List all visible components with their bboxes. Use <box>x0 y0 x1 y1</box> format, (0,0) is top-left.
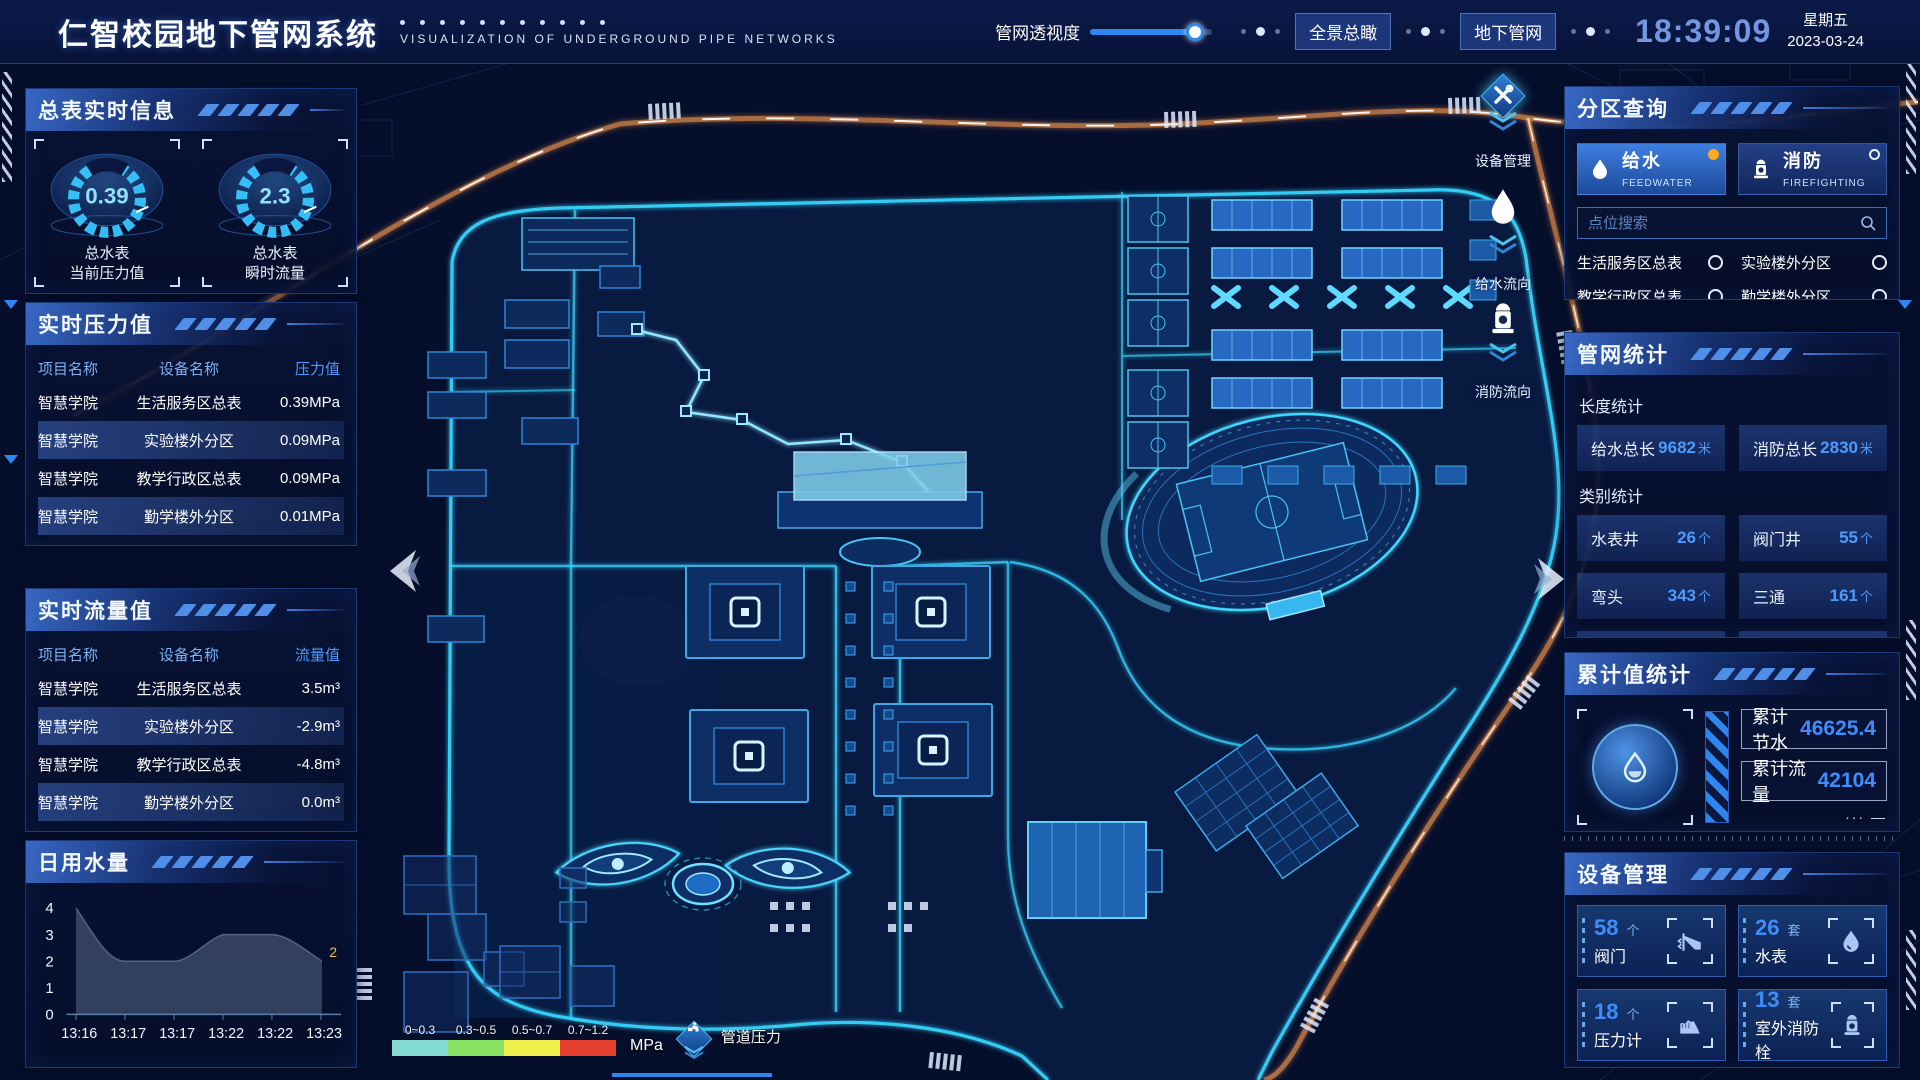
app-title: 仁智校园地下管网系统 <box>58 10 378 54</box>
panel-title: 设备管理 <box>1577 859 1669 889</box>
panel-device-management: 设备管理 58个阀门 26套水表 18个压力计 13套室外消防栓 <box>1564 852 1900 1068</box>
point-radio[interactable] <box>1708 255 1723 270</box>
feedwater-radio[interactable] <box>1708 149 1719 160</box>
flow-table: 项目名称设备名称流量值 智慧学院生活服务区总表3.5m³ 智慧学院实验楼外分区-… <box>26 631 356 832</box>
svg-text:0.39: 0.39 <box>85 183 128 208</box>
gauge-dial-icon: 2.3 <box>207 143 343 239</box>
point-search-box[interactable] <box>1577 207 1887 239</box>
bottom-accent-bar <box>612 1073 772 1077</box>
legend-range: 0.3~0.5 <box>448 1023 504 1056</box>
daily-water-chart: 4 3 2 1 0 2 13:16 13:17 13:17 13:22 13:2… <box>26 887 356 1063</box>
weekday-label: 星期五 <box>1803 12 1848 29</box>
edge-hash-decoration <box>2 72 12 182</box>
tools-icon <box>1491 83 1515 107</box>
date-block: 星期五 2023-03-24 <box>1787 11 1864 53</box>
table-row[interactable]: 智慧学院勤学楼外分区0.01MPa <box>38 497 344 535</box>
panel-header: 总表实时信息 <box>26 89 356 131</box>
panel-title: 实时流量值 <box>38 595 153 625</box>
stripes-decoration <box>1705 711 1729 823</box>
slashes-decoration <box>1695 348 1795 360</box>
overview-button[interactable]: 全景总瞰 <box>1295 13 1391 50</box>
pressure-gauge-icon <box>1677 1012 1703 1038</box>
water-meter-icon <box>1838 928 1864 954</box>
map-pan-left-arrow[interactable] <box>386 548 420 594</box>
panel-title: 日用水量 <box>38 847 130 877</box>
legend-range: 0.7~1.2 <box>560 1023 616 1056</box>
list-item[interactable]: 勤学楼外分区 <box>1741 279 1887 300</box>
firefighting-toggle-button[interactable]: 消防FIREFIGHTING <box>1738 143 1887 195</box>
chevrons-down-icon <box>683 1046 705 1060</box>
pipe-opacity-slider[interactable] <box>1090 29 1212 35</box>
svg-text:2.3: 2.3 <box>259 183 290 208</box>
edge-marker <box>4 300 18 309</box>
x-axis-ticks: 13:16 13:17 13:17 13:22 13:22 13:23 <box>61 1026 342 1042</box>
slashes-decoration <box>1718 668 1818 680</box>
chevrons-down-icon <box>1488 235 1518 255</box>
svg-text:1: 1 <box>45 981 53 997</box>
valve-icon <box>1677 928 1703 954</box>
svg-text:3: 3 <box>45 928 53 944</box>
panel-header: 分区查询 <box>1565 87 1899 129</box>
stat-box: 三通161个 <box>1739 573 1887 619</box>
stat-box-clipped <box>1577 631 1725 638</box>
hydrant-icon <box>1839 1012 1865 1038</box>
stat-box: 阀门井55个 <box>1739 515 1887 561</box>
panel-realtime-flow: 实时流量值 项目名称设备名称流量值 智慧学院生活服务区总表3.5m³ 智慧学院实… <box>25 588 357 832</box>
table-row[interactable]: 智慧学院生活服务区总表0.39MPa <box>38 383 344 421</box>
panel-title: 累计值统计 <box>1577 659 1692 689</box>
dashes-decoration: ··· — <box>1845 809 1887 825</box>
water-drop-icon <box>1588 157 1612 181</box>
point-radio[interactable] <box>1708 289 1723 301</box>
slashes-decoration <box>1695 868 1795 880</box>
app-subtitle: VISUALIZATION OF UNDERGROUND PIPE NETWOR… <box>400 32 838 46</box>
firefighting-radio[interactable] <box>1869 149 1880 160</box>
device-card-pressure-gauges[interactable]: 18个压力计 <box>1577 989 1726 1061</box>
dots-separator <box>1566 27 1615 36</box>
chevrons-down-icon <box>1488 343 1518 363</box>
device-card-water-meters[interactable]: 26套水表 <box>1738 905 1887 977</box>
date-label: 2023-03-24 <box>1787 33 1864 50</box>
series-end-label: 2 <box>329 944 337 960</box>
slashes-decoration <box>202 104 302 116</box>
panel-title: 分区查询 <box>1577 93 1669 123</box>
panel-network-stats: 管网统计 长度统计 给水总长9682米 消防总长2830米 类别统计 水表井26… <box>1564 332 1900 638</box>
svg-text:4: 4 <box>45 901 53 917</box>
underground-pipes-button[interactable]: 地下管网 <box>1460 13 1556 50</box>
panel-title: 管网统计 <box>1577 339 1669 369</box>
slashes-decoration <box>179 318 279 330</box>
device-card-hydrants[interactable]: 13套室外消防栓 <box>1738 989 1887 1061</box>
point-radio[interactable] <box>1872 255 1887 270</box>
y-axis-ticks: 4 3 2 1 0 <box>45 901 53 1023</box>
stat-box: 消防总长2830米 <box>1739 425 1887 471</box>
slashes-decoration <box>156 856 256 868</box>
stat-box: 水表井26个 <box>1577 515 1725 561</box>
title-dots-decoration <box>400 18 838 28</box>
stat-box-clipped <box>1739 631 1887 638</box>
panel-daily-water: 日用水量 4 3 2 1 0 2 13:16 13:17 13:17 13:22… <box>25 840 357 1068</box>
panel-header: 累计值统计 <box>1565 653 1899 695</box>
top-bar: 仁智校园地下管网系统 VISUALIZATION OF UNDERGROUND … <box>0 0 1920 64</box>
slashes-decoration <box>179 604 279 616</box>
tool-feedwater-flow[interactable]: 给水流向 <box>1470 186 1536 294</box>
basketball-courts <box>1128 196 1188 468</box>
stat-box: 弯头343个 <box>1577 573 1725 619</box>
panel-header: 设备管理 <box>1565 853 1899 895</box>
dots-separator <box>1401 27 1450 36</box>
svg-text:13:17: 13:17 <box>159 1026 195 1042</box>
hydrant-icon <box>1749 157 1773 181</box>
svg-text:13:17: 13:17 <box>110 1026 146 1042</box>
feedwater-toggle-button[interactable]: 给水FEEDWATER <box>1577 143 1726 195</box>
device-card-valves[interactable]: 58个阀门 <box>1577 905 1726 977</box>
table-row[interactable]: 智慧学院教学行政区总表0.09MPa <box>38 459 344 497</box>
panel-header: 实时流量值 <box>26 589 356 631</box>
gymnasium <box>1028 822 1162 918</box>
zone-point-list: 生活服务区总表 实验楼外分区 教学行政区总表 勤学楼外分区 砺学楼外分区 宿舍区… <box>1577 245 1887 300</box>
svg-text:13:22: 13:22 <box>257 1026 293 1042</box>
length-stats-label: 长度统计 <box>1579 393 1885 417</box>
edge-hash-decoration <box>1906 620 1916 700</box>
point-search-input[interactable] <box>1588 215 1860 232</box>
panel-header: 实时压力值 <box>26 303 356 345</box>
search-icon <box>1860 215 1876 231</box>
table-row[interactable]: 智慧学院教学行政区总表-4.8m³ <box>38 745 344 783</box>
list-item[interactable]: 教学行政区总表 <box>1577 279 1723 300</box>
table-row[interactable]: 智慧学院实验楼外分区-2.9m³ <box>38 707 344 745</box>
water-saving-badge <box>1577 709 1693 825</box>
flow-gauge: 2.3 总水表瞬时流量 <box>202 139 348 287</box>
svg-text:13:16: 13:16 <box>61 1026 97 1042</box>
panel-realtime-pressure: 实时压力值 项目名称设备名称压力值 智慧学院生活服务区总表0.39MPa 智慧学… <box>25 302 357 546</box>
pipe-pressure-label: 管道压力 <box>721 1026 781 1047</box>
clock: 18:39:09 <box>1635 13 1771 50</box>
table-header-row: 项目名称设备名称压力值 <box>38 353 344 383</box>
edge-hash-decoration <box>1906 930 1916 1010</box>
pipe-opacity-label: 管网透视度 <box>995 19 1080 44</box>
legend-unit: MPa <box>630 1037 663 1055</box>
panel-meter-summary: 总表实时信息 0.39 总水表当前压力值 <box>25 88 357 294</box>
lake <box>580 596 696 686</box>
list-item[interactable]: 生活服务区总表 <box>1577 245 1723 279</box>
hydrant-icon <box>1486 300 1520 338</box>
area-series <box>76 908 322 1014</box>
table-row[interactable]: 智慧学院勤学楼外分区0.0m³ <box>38 783 344 821</box>
slashes-decoration <box>1695 102 1795 114</box>
edge-marker <box>4 455 18 464</box>
map-pan-right-arrow[interactable] <box>1534 556 1568 602</box>
table-header-row: 项目名称设备名称流量值 <box>38 639 344 669</box>
pressure-gauge: 0.39 总水表当前压力值 <box>34 139 180 287</box>
table-row[interactable]: 智慧学院生活服务区总表3.5m³ <box>38 669 344 707</box>
panel-zone-query: 分区查询 给水FEEDWATER 消防FIREFIGHTING 生活服务区总表 … <box>1564 86 1900 300</box>
tool-device-management[interactable]: 设备管理 <box>1470 80 1536 171</box>
pressure-table: 项目名称设备名称压力值 智慧学院生活服务区总表0.39MPa 智慧学院实验楼外分… <box>26 345 356 546</box>
gauge-dial-icon: 0.39 <box>39 143 175 239</box>
gauge-label: 总水表瞬时流量 <box>206 244 344 285</box>
svg-text:13:23: 13:23 <box>306 1026 342 1042</box>
svg-text:13:22: 13:22 <box>208 1026 244 1042</box>
slider-knob[interactable] <box>1186 23 1204 41</box>
edge-marker <box>1898 300 1912 309</box>
table-row[interactable]: 智慧学院砺学楼外分区0.00MPa <box>38 535 344 546</box>
pressure-legend: 0~0.3 0.3~0.5 0.5~0.7 0.7~1.2 MPa 管道压力 <box>392 1016 781 1056</box>
water-drop-icon <box>1485 186 1521 230</box>
point-radio[interactable] <box>1872 289 1887 301</box>
dots-separator <box>1236 27 1285 36</box>
panel-title: 总表实时信息 <box>38 95 176 125</box>
gauge-label: 总水表当前压力值 <box>38 244 176 285</box>
panel-title: 实时压力值 <box>38 309 153 339</box>
legend-range: 0~0.3 <box>392 1023 448 1056</box>
panel-header: 日用水量 <box>26 841 356 883</box>
table-row[interactable]: 智慧学院实验楼外分区0.09MPa <box>38 421 344 459</box>
faucet-icon <box>685 1018 703 1036</box>
list-item[interactable]: 实验楼外分区 <box>1741 245 1887 279</box>
cumulative-saving-row: 累计节水46625.4 <box>1741 709 1887 749</box>
svg-text:0: 0 <box>45 1008 53 1024</box>
cumulative-flow-row: 累计流量42104 <box>1741 761 1887 801</box>
category-stats-label: 类别统计 <box>1579 483 1885 507</box>
tool-fire-flow[interactable]: 消防流向 <box>1470 300 1536 402</box>
legend-range: 0.5~0.7 <box>504 1023 560 1056</box>
stat-box: 给水总长9682米 <box>1577 425 1725 471</box>
panel-header: 管网统计 <box>1565 333 1899 375</box>
app-subtitle-block: VISUALIZATION OF UNDERGROUND PIPE NETWOR… <box>400 18 838 46</box>
table-row[interactable]: 智慧学院砺学楼外分区2.3m³ <box>38 821 344 832</box>
water-drop-icon <box>1618 750 1652 784</box>
ruler-decoration <box>1564 836 1900 841</box>
pipe-pressure-toggle[interactable]: 管道压力 <box>677 1016 781 1056</box>
panel-cumulative-stats: 累计值统计 累计节水46625.4 累计流量42104 ··· — <box>1564 652 1900 832</box>
svg-text:2: 2 <box>45 954 53 970</box>
